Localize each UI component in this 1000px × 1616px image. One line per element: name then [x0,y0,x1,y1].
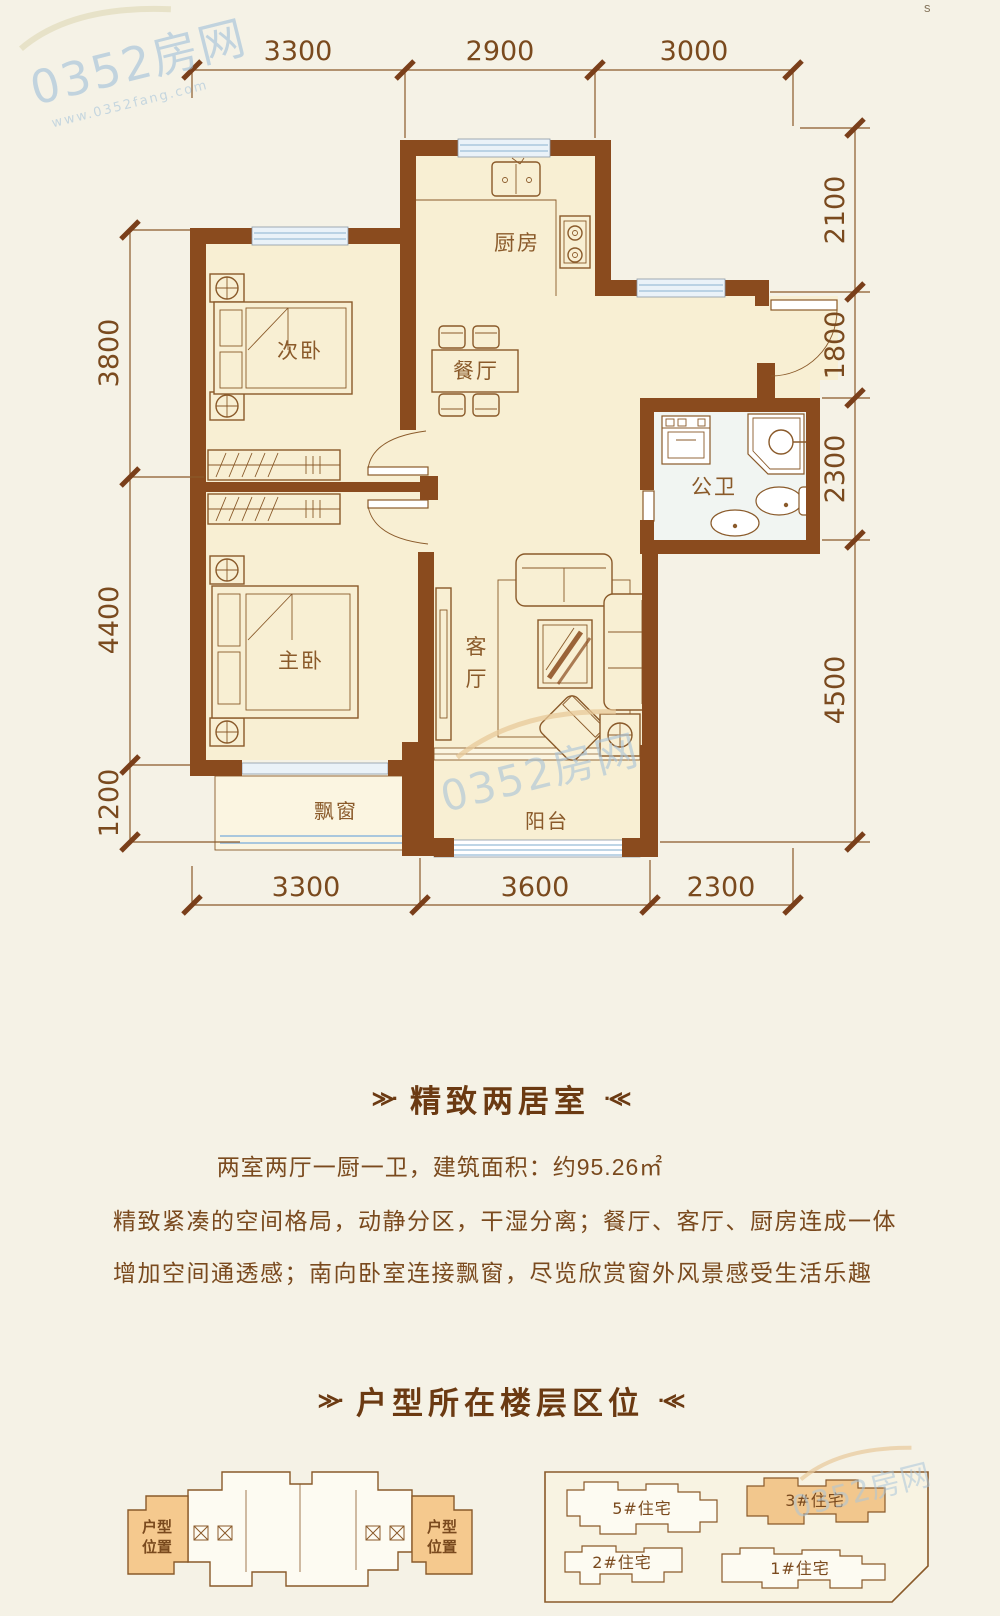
label-kitchen: 厨房 [494,231,540,255]
bathroom-door [643,491,654,521]
ornament-right-icon: ·≪ [604,1086,628,1112]
dim-right-4: 4500 [820,656,851,725]
entry-window [637,279,725,297]
label-living-2: 厅 [466,667,489,691]
floorplan-page: s [0,0,1000,1616]
unit-position-right-label2: 位置 [427,1538,457,1556]
unit-position-left-label2: 位置 [142,1538,172,1556]
label-dining: 餐厅 [453,359,499,383]
watermark-top-left: 0352房网 www.0352fang.com [17,0,257,134]
ornament-left-icon: ≫· [372,1086,396,1112]
dim-top-3: 3000 [660,36,729,67]
dim-top-1: 3300 [264,36,333,67]
toilet [756,487,802,515]
dim-right-3: 2300 [820,435,851,504]
bath-sink [711,510,759,536]
building-2-label: 2#住宅 [592,1553,652,1572]
bedroom2-window [252,227,348,245]
floorplate-diagram: 户型 位置 户型 位置 [128,1472,472,1586]
dim-bottom-1: 3300 [272,872,341,903]
dim-top-2: 2900 [466,36,535,67]
tv-cabinet [436,588,451,740]
label-bathroom: 公卫 [691,475,737,499]
layout-title-text: 精致两居室 [410,1076,590,1121]
dim-bottom-3: 2300 [687,872,756,903]
dim-left-1: 3800 [94,319,125,388]
location-diagrams: 户型 位置 户型 位置 5#住宅 3#住宅 2#住宅 1#住宅 0352房网 [0,1400,1000,1616]
unit-description-line1: 精致紧凑的空间格局，动静分区，干湿分离；餐厅、客厅、厨房连成一体 [113,1202,897,1236]
site-plan: 5#住宅 3#住宅 2#住宅 1#住宅 0352房网 [545,1437,935,1602]
label-living-1: 客 [466,635,489,659]
unit-position-left-label1: 户型 [142,1518,172,1536]
kitchen-window [458,139,550,157]
floorplan-drawing: 3300 2900 3000 3300 3600 2300 3800 4400 … [0,0,1000,950]
building-1-label: 1#住宅 [770,1559,830,1578]
label-bay-window: 飘窗 [314,799,358,823]
dim-bottom-2: 3600 [501,872,570,903]
dim-left-2: 4400 [94,586,125,655]
label-second-bedroom: 次卧 [277,339,323,363]
dim-right-2: 1800 [820,311,851,380]
unit-description-line2: 增加空间通透感；南向卧室连接飘窗，尽览欣赏窗外风景感受生活乐趣 [113,1254,873,1288]
building-5-label: 5#住宅 [612,1499,672,1518]
label-master-bedroom: 主卧 [278,649,324,673]
dim-right-1: 2100 [820,176,851,245]
unit-position-right-label1: 户型 [427,1518,457,1536]
section-title-layout: ≫· 精致两居室 ·≪ [0,1076,1000,1121]
dim-left-3: 1200 [94,769,125,838]
label-balcony: 阳台 [525,809,569,833]
unit-specs: 两室两厅一厨一卫，建筑面积：约95.26㎡ [0,1148,880,1182]
